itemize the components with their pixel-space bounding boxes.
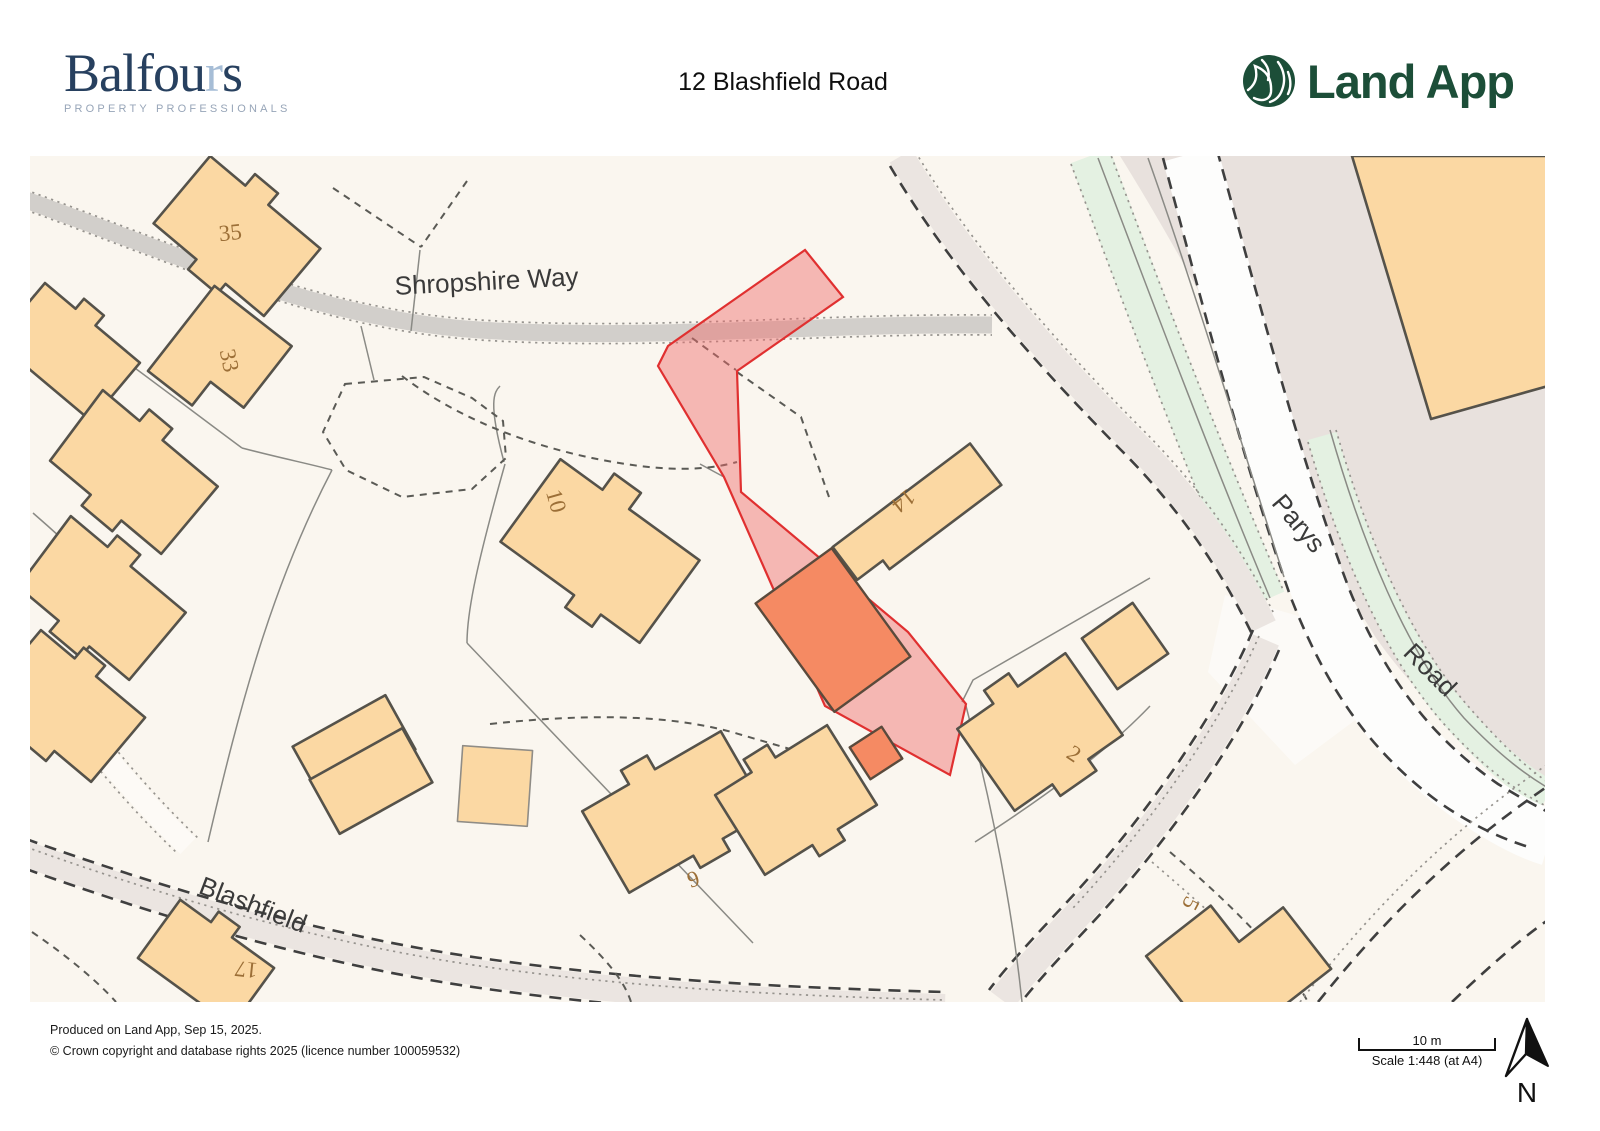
north-arrow-label: N	[1517, 1077, 1537, 1108]
scale-bar-text: Scale 1:448 (at A4)	[1358, 1053, 1496, 1068]
scale-bar-rule: 10 m	[1358, 1038, 1496, 1051]
scale-bar: 10 m Scale 1:448 (at A4)	[1358, 1038, 1496, 1068]
map-canvas: Shropshire Way Parys Road Blashfield 35 …	[0, 0, 1600, 1131]
building-garage	[457, 746, 532, 827]
attribution-produced: Produced on Land App, Sep 15, 2025.	[50, 1020, 460, 1041]
house-number-35: 35	[217, 219, 242, 246]
attribution-copyright: © Crown copyright and database rights 20…	[50, 1041, 460, 1062]
house-number-17: 17	[233, 956, 258, 983]
map-attribution: Produced on Land App, Sep 15, 2025. © Cr…	[50, 1020, 460, 1063]
north-arrow: N	[1494, 1014, 1560, 1110]
scale-bar-value: 10 m	[1413, 1034, 1442, 1049]
